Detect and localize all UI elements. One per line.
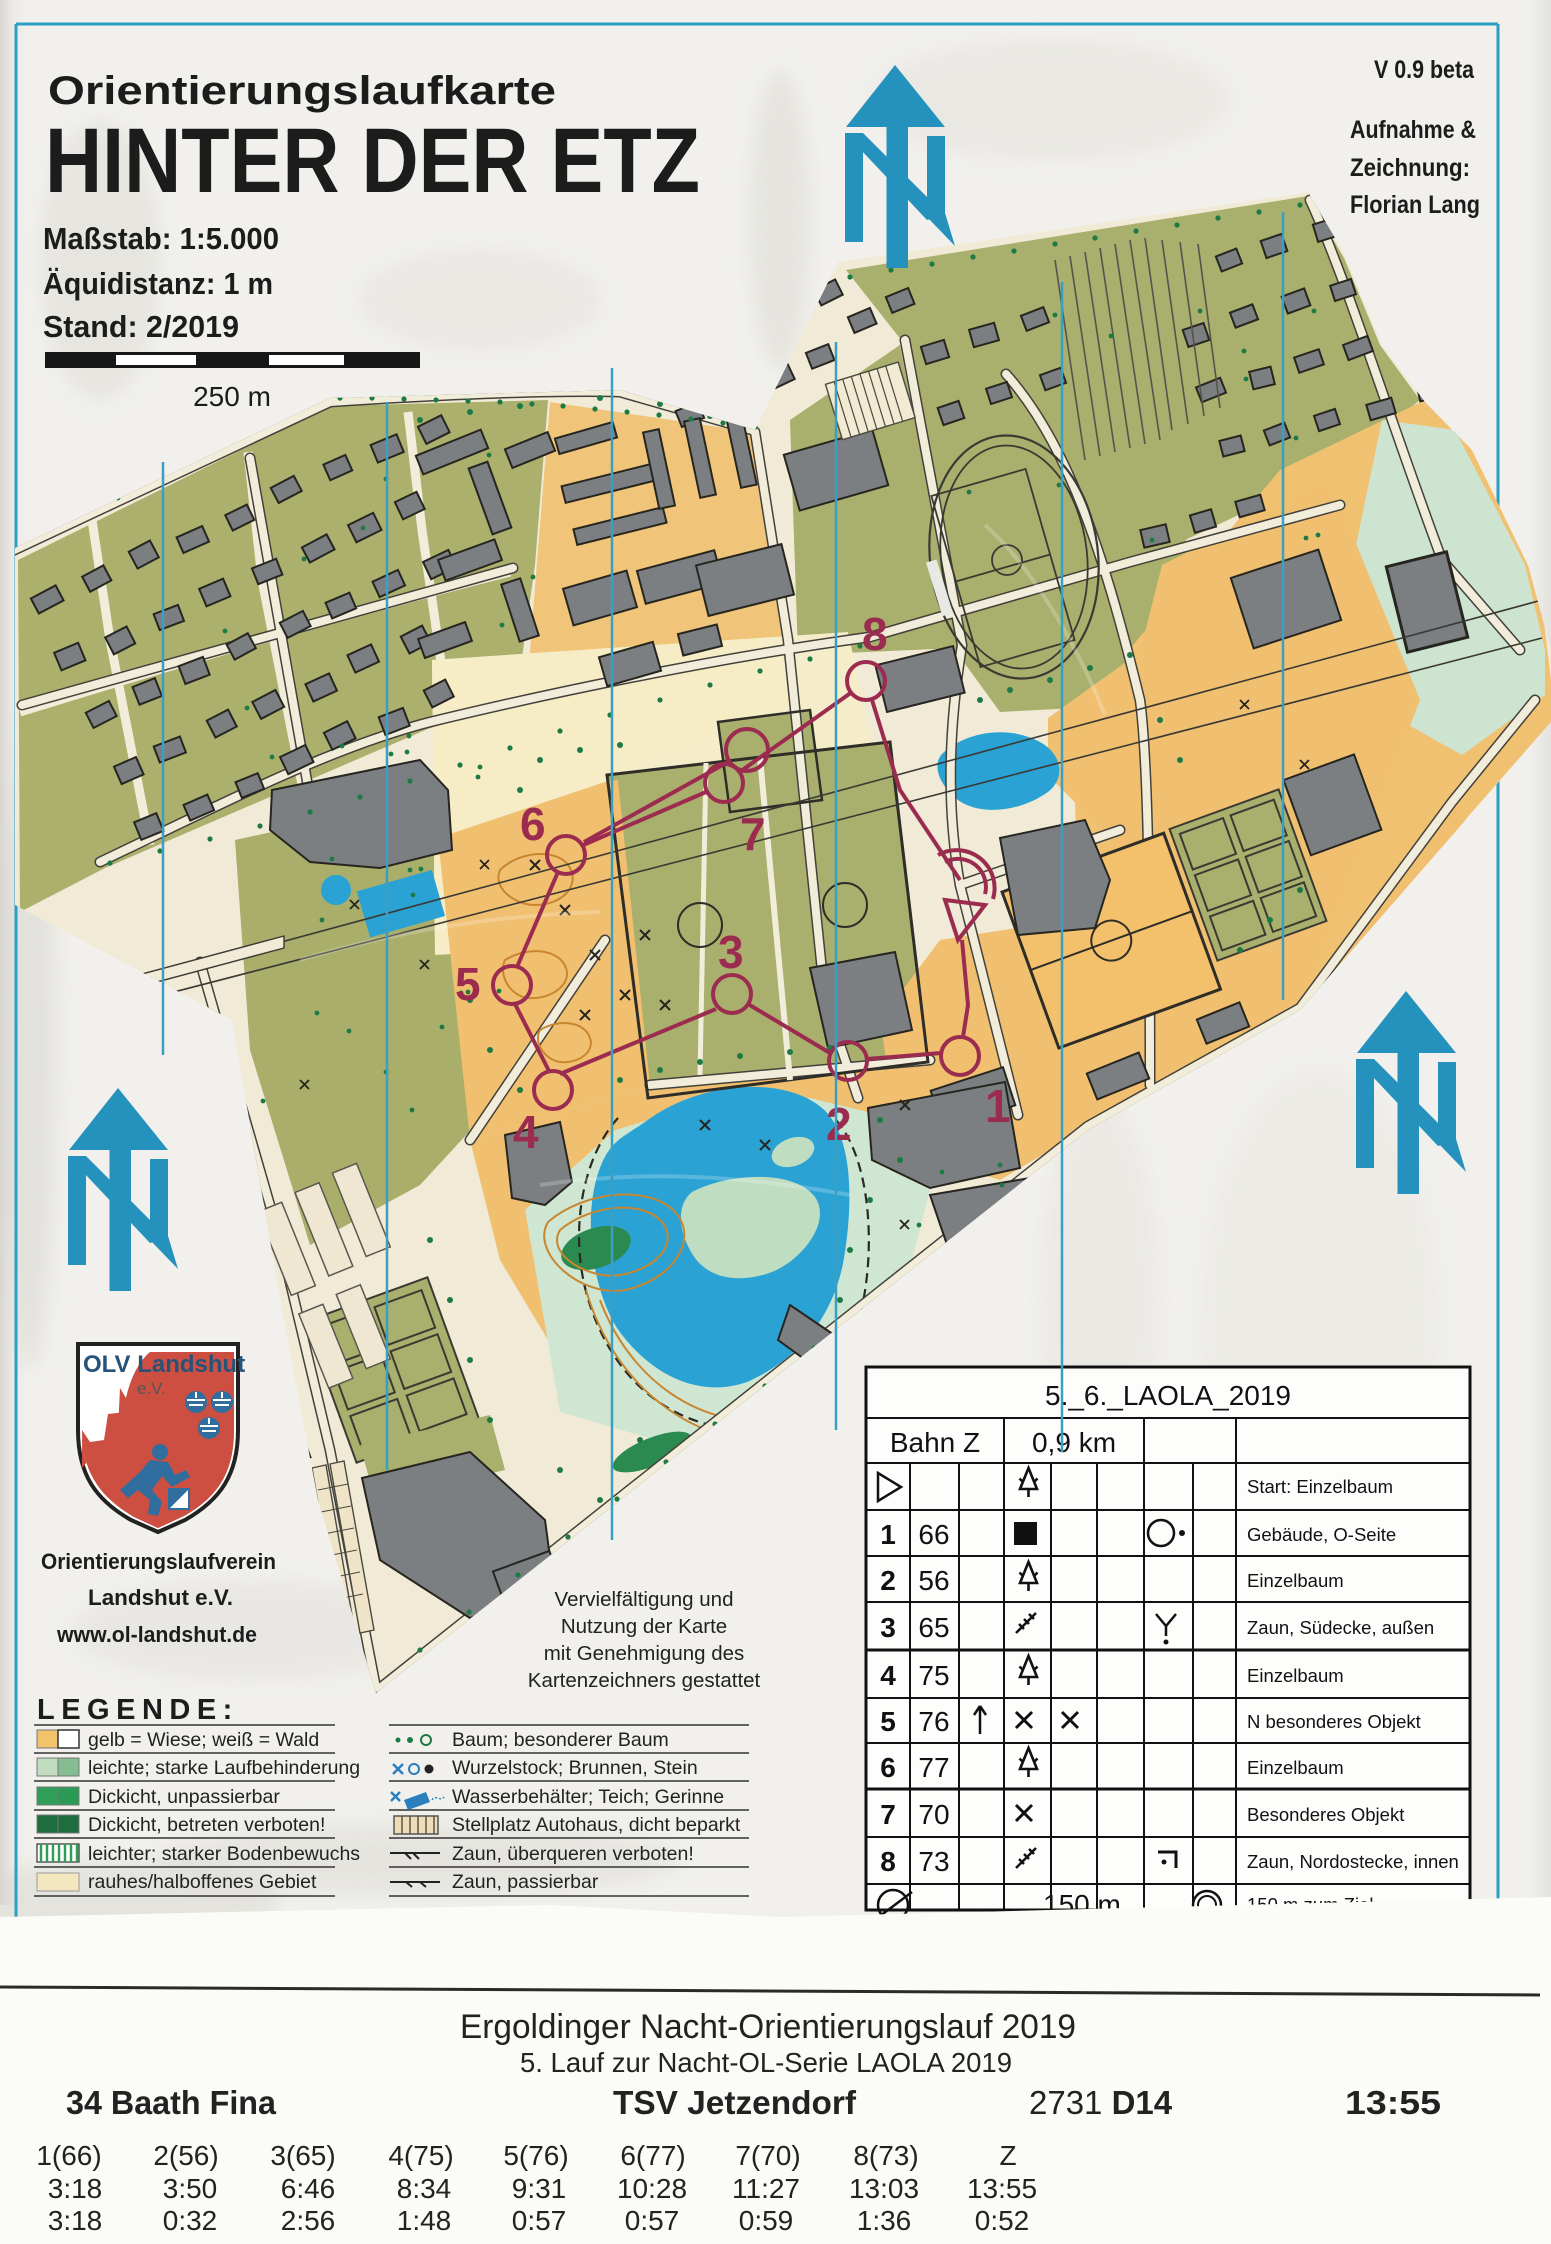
svg-text:Kartenzeichners gestattet: Kartenzeichners gestattet <box>528 1669 761 1692</box>
svg-text:V 0.9 beta: V 0.9 beta <box>1374 56 1475 84</box>
svg-text:5: 5 <box>455 958 481 1010</box>
svg-text:8: 8 <box>862 608 888 660</box>
svg-text:5: 5 <box>880 1706 896 1737</box>
svg-text:13:55: 13:55 <box>967 2173 1037 2204</box>
svg-text:0:57: 0:57 <box>625 2205 680 2236</box>
svg-text:2(56): 2(56) <box>153 2140 218 2171</box>
svg-text:Aufnahme &: Aufnahme & <box>1350 116 1476 144</box>
svg-text:70: 70 <box>918 1799 949 1830</box>
svg-text:Besonderes Objekt: Besonderes Objekt <box>1247 1804 1404 1825</box>
svg-text:0:57: 0:57 <box>512 2205 567 2236</box>
svg-text:Stellplatz Autohaus, dicht bep: Stellplatz Autohaus, dicht beparkt <box>452 1814 741 1836</box>
svg-text:Stand: 2/2019: Stand: 2/2019 <box>43 309 239 344</box>
svg-text:7(70): 7(70) <box>735 2140 800 2171</box>
svg-text:mit Genehmigung des: mit Genehmigung des <box>544 1642 745 1665</box>
svg-text:leichte; starke Laufbehinderun: leichte; starke Laufbehinderung <box>88 1757 360 1779</box>
svg-text:Baum; besonderer Baum: Baum; besonderer Baum <box>452 1729 669 1751</box>
svg-text:Orientierungslaufverein: Orientierungslaufverein <box>41 1549 276 1574</box>
svg-text:2731 D14: 2731 D14 <box>1029 2084 1173 2121</box>
svg-text:4: 4 <box>513 1106 539 1158</box>
svg-text:3: 3 <box>718 926 744 978</box>
svg-text:34 Baath Fina: 34 Baath Fina <box>66 2084 277 2121</box>
svg-text:77: 77 <box>918 1752 949 1783</box>
svg-text:1:36: 1:36 <box>857 2205 912 2236</box>
svg-text:5. Lauf zur Nacht-OL-Serie LAO: 5. Lauf zur Nacht-OL-Serie LAOLA 2019 <box>520 2047 1012 2078</box>
svg-text:Einzelbaum: Einzelbaum <box>1247 1665 1344 1686</box>
svg-text:8(73): 8(73) <box>853 2140 918 2171</box>
svg-text:Einzelbaum: Einzelbaum <box>1247 1757 1344 1778</box>
svg-text:56: 56 <box>918 1565 949 1596</box>
svg-text:1(66): 1(66) <box>36 2140 101 2171</box>
svg-text:Einzelbaum: Einzelbaum <box>1247 1570 1344 1591</box>
svg-text:3: 3 <box>880 1612 896 1643</box>
svg-text:13:03: 13:03 <box>849 2173 919 2204</box>
svg-text:1: 1 <box>985 1080 1011 1132</box>
svg-text:8: 8 <box>880 1846 896 1877</box>
svg-text:65: 65 <box>918 1612 949 1643</box>
svg-text:3:18: 3:18 <box>48 2205 103 2236</box>
svg-text:73: 73 <box>918 1846 949 1877</box>
svg-text:5(76): 5(76) <box>503 2140 568 2171</box>
svg-text:6: 6 <box>520 798 546 850</box>
svg-text:75: 75 <box>918 1660 949 1691</box>
svg-text:6(77): 6(77) <box>620 2140 685 2171</box>
svg-text:3:50: 3:50 <box>163 2173 218 2204</box>
svg-text:e.V.: e.V. <box>137 1379 166 1398</box>
svg-text:N besonderes Objekt: N besonderes Objekt <box>1247 1711 1421 1732</box>
svg-text:gelb = Wiese; weiß = Wald: gelb = Wiese; weiß = Wald <box>88 1729 319 1751</box>
svg-text:0,9 km: 0,9 km <box>1032 1427 1116 1458</box>
svg-text:1:48: 1:48 <box>397 2205 452 2236</box>
svg-text:11:27: 11:27 <box>732 2173 800 2204</box>
svg-text:Zeichnung:: Zeichnung: <box>1350 154 1470 182</box>
svg-text:4(75): 4(75) <box>388 2140 453 2171</box>
svg-text:OLV Landshut: OLV Landshut <box>83 1351 245 1378</box>
svg-text:Äquidistanz: 1 m: Äquidistanz: 1 m <box>43 266 273 301</box>
svg-text:Zaun, Nordostecke, innen: Zaun, Nordostecke, innen <box>1247 1851 1459 1872</box>
svg-text:Dickicht, betreten verboten!: Dickicht, betreten verboten! <box>88 1814 325 1836</box>
svg-text:0:32: 0:32 <box>163 2205 218 2236</box>
svg-text:Start: Einzelbaum: Start: Einzelbaum <box>1247 1476 1393 1497</box>
svg-text:2:56: 2:56 <box>281 2205 336 2236</box>
svg-text:Maßstab: 1:5.000: Maßstab: 1:5.000 <box>43 221 279 256</box>
svg-text:Florian Lang: Florian Lang <box>1350 191 1480 219</box>
svg-text:66: 66 <box>918 1519 949 1550</box>
svg-text:Bahn Z: Bahn Z <box>890 1427 980 1458</box>
svg-text:Gebäude, O-Seite: Gebäude, O-Seite <box>1247 1524 1396 1545</box>
svg-text:4: 4 <box>880 1660 896 1691</box>
svg-text:8:34: 8:34 <box>397 2173 452 2204</box>
svg-text:0:52: 0:52 <box>975 2205 1030 2236</box>
svg-text:2: 2 <box>826 1098 852 1150</box>
svg-text:Z: Z <box>999 2140 1016 2171</box>
svg-text:Orientierungslaufkarte: Orientierungslaufkarte <box>48 69 556 113</box>
svg-text:Nutzung der Karte: Nutzung der Karte <box>561 1615 727 1638</box>
svg-text:5._6._LAOLA_2019: 5._6._LAOLA_2019 <box>1045 1380 1291 1411</box>
svg-text:9:31: 9:31 <box>512 2173 567 2204</box>
svg-text:Zaun, passierbar: Zaun, passierbar <box>452 1871 599 1893</box>
svg-text:1: 1 <box>880 1519 896 1550</box>
svg-text:Vervielfältigung und: Vervielfältigung und <box>555 1588 734 1611</box>
svg-text:HINTER DER ETZ: HINTER DER ETZ <box>45 110 700 212</box>
svg-text:3:18: 3:18 <box>48 2173 103 2204</box>
svg-text:rauhes/halboffenes Gebiet: rauhes/halboffenes Gebiet <box>88 1871 317 1893</box>
svg-text:TSV Jetzendorf: TSV Jetzendorf <box>613 2084 857 2121</box>
svg-text:Wurzelstock; Brunnen, Stein: Wurzelstock; Brunnen, Stein <box>452 1757 698 1779</box>
svg-text:Zaun, Südecke, außen: Zaun, Südecke, außen <box>1247 1617 1434 1638</box>
svg-text:7: 7 <box>740 808 766 860</box>
svg-text:Dickicht, unpassierbar: Dickicht, unpassierbar <box>88 1786 280 1808</box>
svg-text:LEGENDE:: LEGENDE: <box>37 1694 239 1726</box>
svg-text:leichter; starker Bodenbewuchs: leichter; starker Bodenbewuchs <box>88 1843 360 1865</box>
svg-text:Wasserbehälter; Teich; Gerinne: Wasserbehälter; Teich; Gerinne <box>452 1786 724 1808</box>
svg-text:13:55: 13:55 <box>1345 2084 1441 2121</box>
svg-text:3(65): 3(65) <box>270 2140 335 2171</box>
svg-text:6:46: 6:46 <box>281 2173 336 2204</box>
svg-text:2: 2 <box>880 1565 896 1596</box>
svg-text:0:59: 0:59 <box>739 2205 794 2236</box>
svg-text:Landshut e.V.: Landshut e.V. <box>88 1585 233 1610</box>
svg-text:Ergoldinger Nacht-Orientierung: Ergoldinger Nacht-Orientierungslauf 2019 <box>460 2008 1076 2046</box>
svg-text:250 m: 250 m <box>193 381 271 412</box>
svg-text:76: 76 <box>918 1706 949 1737</box>
svg-text:www.ol-landshut.de: www.ol-landshut.de <box>56 1622 257 1647</box>
svg-text:7: 7 <box>880 1799 896 1830</box>
svg-text:Zaun, überqueren verboten!: Zaun, überqueren verboten! <box>452 1843 694 1865</box>
svg-text:6: 6 <box>880 1752 896 1783</box>
svg-text:10:28: 10:28 <box>617 2173 687 2204</box>
